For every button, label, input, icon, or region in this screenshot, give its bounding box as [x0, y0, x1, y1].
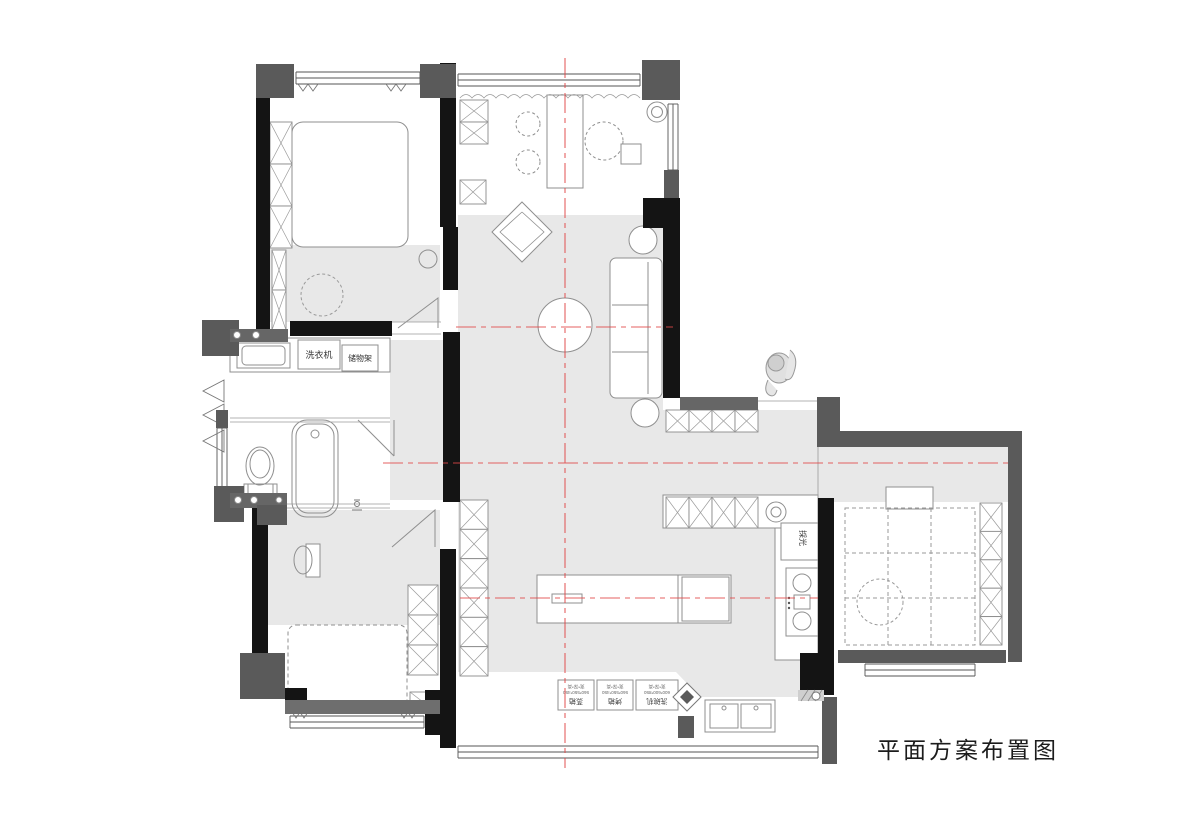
cabinet-cell: [735, 410, 758, 432]
cabinet-cell: [980, 531, 1002, 559]
washing-machine-label: 洗衣机: [305, 349, 332, 360]
cabinet-cell: [270, 122, 292, 164]
cabinet-cell: [460, 122, 488, 144]
svg-text:宽*深*高: 宽*深*高: [567, 683, 585, 690]
study-chair-3: [585, 122, 623, 160]
cabinet-cell: [712, 497, 735, 528]
cabinet-cell: [666, 497, 689, 528]
cabinet-cell: [689, 497, 712, 528]
cabinet-cell: [408, 615, 438, 645]
cabinet-cell: [272, 250, 286, 290]
bath-door: [358, 420, 394, 456]
side-table-top: [629, 226, 657, 254]
cabinet-cell: [980, 503, 1002, 531]
cabinet-cell: [666, 410, 689, 432]
svg-text:600*600*850: 600*600*850: [643, 690, 670, 695]
cabinet-cell: [270, 206, 292, 248]
cabinet-cell: [460, 617, 488, 646]
storage-rack-label: 储物架: [348, 353, 372, 363]
sofa: [610, 258, 662, 398]
toilet: [244, 447, 277, 496]
svg-text:烤箱: 烤箱: [608, 697, 622, 706]
louver-window-1: [203, 380, 224, 402]
study-basin: [647, 102, 667, 122]
bedroom3-niche: [886, 487, 933, 509]
svg-text:560*550*450: 560*550*450: [601, 690, 628, 695]
louver-window-3: [203, 430, 224, 452]
window-band: [296, 72, 420, 84]
curtain-tick-1: [298, 84, 318, 91]
curtain-tick-2: [386, 84, 406, 91]
study-chair-2: [516, 150, 540, 174]
window-band: [217, 428, 227, 488]
daylight-label: 採光: [798, 530, 808, 546]
cabinet-cell: [460, 647, 488, 676]
floor-plan-page: 洗衣机 储物架 採光 蒸箱 560*550*450 宽*深*高 烤箱 560*5…: [0, 0, 1200, 838]
window-band: [458, 746, 818, 758]
cabinet-cell: [408, 645, 438, 675]
cabinet-cell: [408, 585, 438, 615]
svg-text:蒸箱: 蒸箱: [569, 697, 583, 706]
cabinet-cell: [460, 559, 488, 588]
cabinet-cell: [460, 100, 488, 122]
cabinet-cell: [735, 497, 758, 528]
svg-text:洗碗机: 洗碗机: [647, 697, 668, 706]
balcony-sink-left: [710, 704, 738, 728]
laundry-sink: [242, 346, 285, 365]
study-chair-1: [516, 112, 540, 136]
side-table-bottom: [631, 399, 659, 427]
cabinet-cell: [270, 164, 292, 206]
kitchen-floor: [458, 430, 818, 672]
island-section: [682, 577, 729, 621]
cabinet-cell: [460, 588, 488, 617]
cabinet-cell: [980, 560, 1002, 588]
cabinet-cell: [712, 410, 735, 432]
floor-plan: 洗衣机 储物架 採光 蒸箱 560*550*450 宽*深*高 烤箱 560*5…: [0, 0, 1200, 838]
window-band: [865, 664, 975, 676]
window-band: [458, 74, 640, 86]
bed-east: [845, 508, 975, 645]
cabinet-cell: [980, 588, 1002, 616]
cabinet-cell: [272, 290, 286, 330]
svg-text:560*550*450: 560*550*450: [562, 690, 589, 695]
lounge-chair-person: [766, 350, 796, 396]
svg-text:宽*深*高: 宽*深*高: [606, 683, 624, 690]
window-band: [668, 104, 678, 170]
bed-master: [292, 122, 408, 247]
cabinet-cell: [460, 529, 488, 558]
study-stool: [621, 144, 641, 164]
svg-text:宽*深*高: 宽*深*高: [648, 683, 666, 690]
bedroom1-floor: [270, 245, 440, 322]
shower-symbol: [352, 500, 362, 510]
hatch-detail: [798, 690, 824, 701]
cabinet-cell: [980, 617, 1002, 645]
balcony-sink-right: [741, 704, 771, 728]
bathtub: [292, 420, 338, 517]
cabinet-cell: [460, 180, 486, 204]
drawing-title: 平面方案布置图: [877, 738, 1059, 763]
cabinet-cell: [460, 500, 488, 529]
cabinet-cell: [689, 410, 712, 432]
